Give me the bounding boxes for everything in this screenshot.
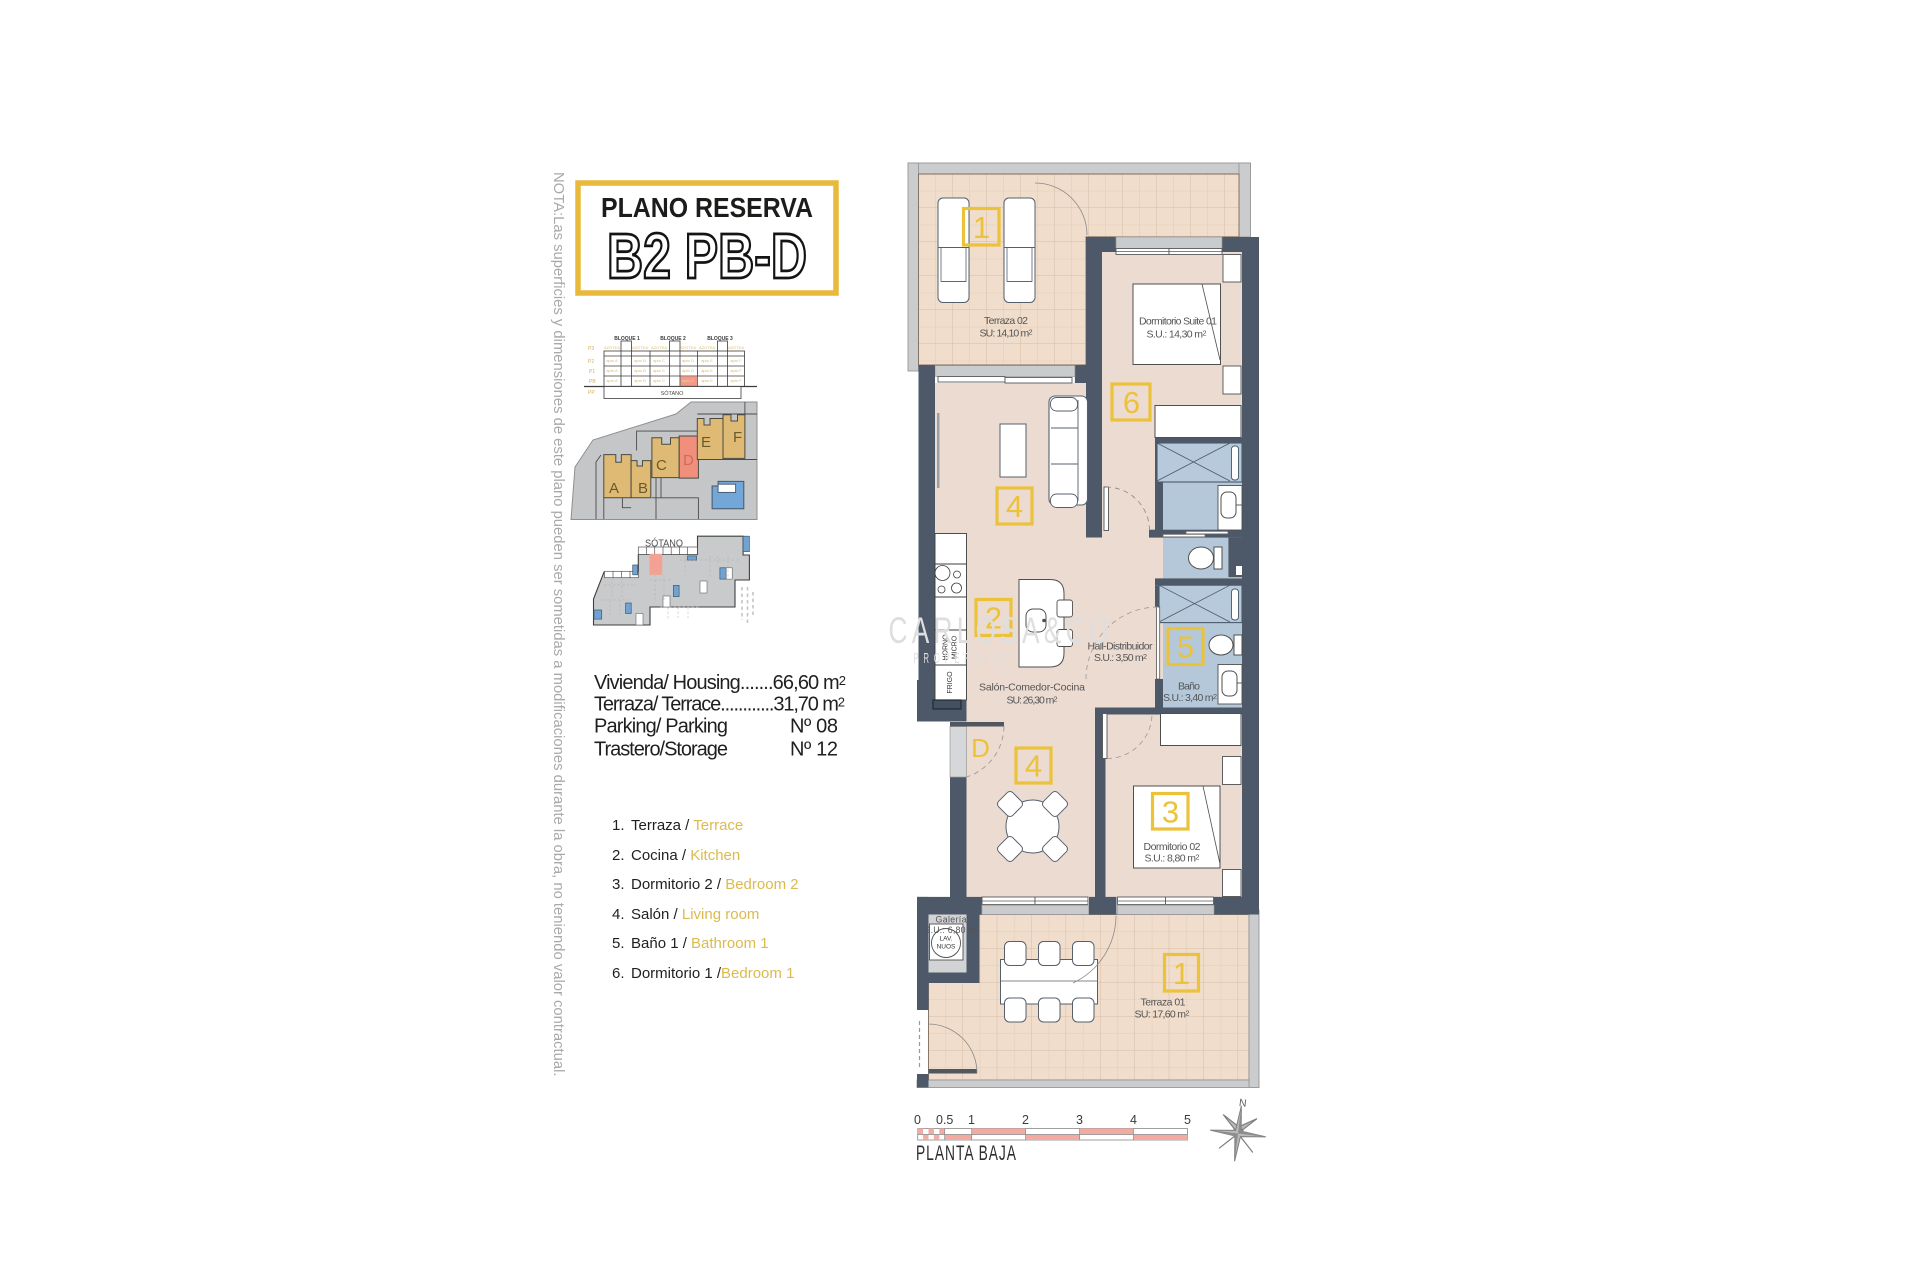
svg-text:Cocina / Kitchen: Cocina / Kitchen (631, 847, 740, 864)
svg-text:PLANO RESERVA: PLANO RESERVA (601, 192, 813, 223)
svg-text:5.: 5. (612, 935, 625, 952)
svg-text:6: 6 (1123, 385, 1140, 420)
svg-text:4: 4 (1130, 1113, 1137, 1127)
svg-text:apto D: apto D (682, 378, 694, 383)
svg-text:FRIGO: FRIGO (947, 671, 954, 694)
svg-text:PP: PP (588, 390, 595, 396)
svg-text:AZOTEA: AZOTEA (651, 345, 667, 350)
svg-text:PB: PB (589, 379, 596, 385)
svg-text:apto E: apto E (701, 358, 713, 363)
svg-text:S.U.: 3,50 m2: S.U.: 3,50 m2 (1094, 652, 1147, 664)
svg-text:NUOS: NUOS (937, 944, 956, 951)
svg-text:Terraza / Terrace: Terraza / Terrace (631, 817, 743, 834)
svg-text:Nº 12: Nº 12 (790, 739, 838, 761)
svg-text:Terraza/ Terrace............31: Terraza/ Terrace............31,70 m2 (594, 694, 845, 716)
svg-text:Salón-Comedor-Cocina: Salón-Comedor-Cocina (979, 682, 1085, 694)
svg-text:Dormitorio 02: Dormitorio 02 (1144, 841, 1201, 853)
svg-text:P1: P1 (589, 369, 595, 375)
svg-text:4: 4 (1006, 489, 1023, 524)
svg-text:S.U.: 14,30 m2: S.U.: 14,30 m2 (1147, 329, 1207, 341)
svg-text:Dormitorio 1 /Bedroom 1: Dormitorio 1 /Bedroom 1 (631, 965, 794, 982)
svg-text:3: 3 (1076, 1113, 1083, 1127)
svg-text:N: N (1238, 1097, 1247, 1110)
svg-text:0: 0 (914, 1113, 921, 1127)
svg-text:SU: 17,60 m2: SU: 17,60 m2 (1135, 1009, 1190, 1021)
svg-text:D: D (683, 452, 694, 469)
svg-text:6.: 6. (612, 965, 625, 982)
svg-text:2.: 2. (612, 847, 625, 864)
svg-text:2: 2 (1022, 1113, 1029, 1127)
svg-text:E: E (701, 434, 711, 451)
svg-text:Terraza 02: Terraza 02 (984, 315, 1028, 327)
svg-text:PROPERTIES: PROPERTIES (914, 650, 1011, 667)
svg-text:AZOTEA: AZOTEA (680, 345, 696, 350)
svg-text:apto E: apto E (701, 378, 713, 383)
svg-text:SÓTANO: SÓTANO (661, 390, 685, 397)
svg-text:apto E: apto E (701, 368, 713, 373)
svg-text:Nº 08: Nº 08 (790, 716, 838, 738)
svg-text:SÓTANO: SÓTANO (645, 537, 683, 550)
svg-text:Salón / Living room: Salón / Living room (631, 906, 759, 923)
svg-text:SU: 26,30 m2: SU: 26,30 m2 (1007, 695, 1058, 707)
svg-text:apto A: apto A (606, 378, 618, 383)
svg-text:0.5: 0.5 (936, 1113, 953, 1127)
svg-text:5: 5 (1184, 1113, 1191, 1127)
svg-text:apto C: apto C (653, 378, 665, 383)
svg-text:apto B: apto B (634, 378, 646, 383)
svg-text:AZOTEA: AZOTEA (728, 345, 744, 350)
svg-text:1: 1 (968, 1113, 975, 1127)
svg-text:AZOTEA: AZOTEA (699, 345, 715, 350)
svg-text:apto F: apto F (730, 358, 742, 363)
svg-text:S.U.: 8,80 m2: S.U.: 8,80 m2 (1145, 853, 1200, 865)
svg-text:Parking/ Parking: Parking/ Parking (594, 716, 728, 738)
svg-text:apto D: apto D (682, 368, 694, 373)
svg-text:P3: P3 (588, 346, 594, 352)
svg-text:apto A: apto A (606, 368, 618, 373)
svg-text:4: 4 (1025, 749, 1042, 784)
svg-text:PLANTA BAJA: PLANTA BAJA (916, 1142, 1017, 1165)
svg-text:apto A: apto A (606, 358, 618, 363)
svg-text:S.U.: 6,80 m2: S.U.: 6,80 m2 (925, 925, 980, 935)
svg-text:apto F: apto F (730, 368, 742, 373)
svg-text:P2: P2 (588, 359, 594, 365)
svg-text:B: B (638, 480, 648, 497)
svg-text:5: 5 (1177, 630, 1194, 665)
svg-text:Trastero/Storage: Trastero/Storage (594, 739, 728, 761)
svg-text:1: 1 (1173, 956, 1190, 991)
svg-text:apto D: apto D (682, 358, 694, 363)
svg-text:C: C (656, 457, 667, 474)
svg-text:LAV.: LAV. (939, 936, 952, 943)
svg-text:Vivienda/ Housing.......66,60: Vivienda/ Housing.......66,60 m2 (594, 672, 846, 694)
svg-text:3.: 3. (612, 876, 625, 893)
svg-text:S.U.: 3,40 m2: S.U.: 3,40 m2 (1163, 692, 1217, 704)
svg-text:Baño 1 / Bathroom 1: Baño 1 / Bathroom 1 (631, 935, 769, 952)
svg-text:3: 3 (1162, 795, 1179, 830)
svg-text:Terraza 01: Terraza 01 (1141, 997, 1186, 1009)
svg-text:F: F (733, 429, 742, 446)
svg-text:AZOTEA: AZOTEA (632, 345, 648, 350)
svg-text:apto C: apto C (653, 358, 665, 363)
svg-text:D: D (971, 733, 990, 763)
svg-text:SU: 14,10 m2: SU: 14,10 m2 (980, 328, 1033, 340)
svg-text:CARLOSA&CO: CARLOSA&CO (889, 610, 1114, 651)
svg-text:Dormitorio Suite 01: Dormitorio Suite 01 (1139, 316, 1217, 328)
svg-text:Dormitorio 2 / Bedroom 2: Dormitorio 2 / Bedroom 2 (631, 876, 799, 893)
svg-text:apto C: apto C (653, 368, 665, 373)
svg-text:1: 1 (973, 210, 990, 245)
svg-text:apto F: apto F (730, 378, 742, 383)
svg-text:Baño: Baño (1178, 681, 1200, 693)
svg-text:AZOTEA: AZOTEA (604, 345, 620, 350)
svg-text:A: A (609, 480, 619, 497)
svg-text:B2 PB-D: B2 PB-D (607, 220, 807, 292)
svg-text:apto B: apto B (634, 358, 646, 363)
svg-text:Galería: Galería (936, 915, 967, 925)
svg-text:apto B: apto B (634, 368, 646, 373)
svg-text:1.: 1. (612, 817, 625, 834)
svg-text:4.: 4. (612, 906, 625, 923)
